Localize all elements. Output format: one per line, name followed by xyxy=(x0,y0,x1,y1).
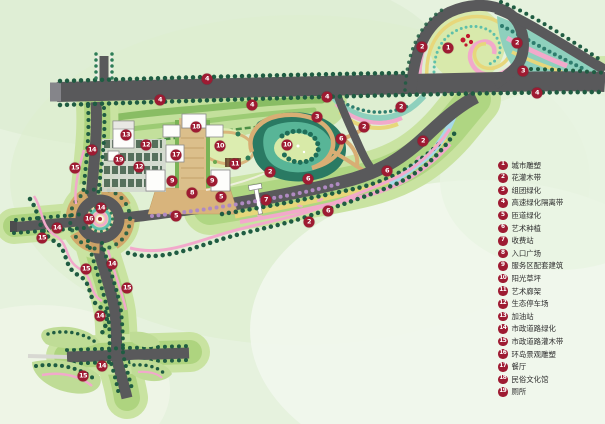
legend-label: 城市雕塑 xyxy=(512,162,542,169)
legend-label: 高速绿化隔离带 xyxy=(512,199,564,206)
art-pergola xyxy=(225,158,241,167)
folk-culture-wing-east xyxy=(206,125,223,137)
legend-number-badge: 1 xyxy=(498,161,508,171)
legend-label: 加油站 xyxy=(512,313,534,320)
legend-item: 7 收费站 xyxy=(498,235,563,248)
toilet-building xyxy=(108,151,119,161)
service-building-east xyxy=(211,170,230,191)
legend-item: 17 餐厅 xyxy=(498,361,563,374)
legend-label: 艺术廊架 xyxy=(512,288,542,295)
legend-label: 服务区配套建筑 xyxy=(512,262,564,269)
legend-number-badge: 14 xyxy=(498,324,508,334)
legend-number-badge: 17 xyxy=(498,362,508,372)
legend-item: 11 艺术廊架 xyxy=(498,285,563,298)
legend-number-badge: 8 xyxy=(498,249,508,259)
restaurant-building xyxy=(166,145,184,162)
legend-label: 入口广场 xyxy=(512,250,542,257)
legend-item: 6 艺术种植 xyxy=(498,222,563,235)
legend-label: 市政道路绿化 xyxy=(512,325,556,332)
folk-culture-wing-west xyxy=(163,125,180,137)
legend-item: 10 阳光草坪 xyxy=(498,272,563,285)
landscape-plan-canvas: 4444421232326210101813121719121129985766… xyxy=(0,0,605,424)
highway xyxy=(57,81,605,92)
west-road xyxy=(16,221,84,227)
folk-culture-hall xyxy=(182,114,206,128)
municipal-road-north xyxy=(91,102,96,199)
roundabout-sculpture-dot xyxy=(98,217,102,221)
legend-label: 匝道绿化 xyxy=(512,212,542,219)
legend-item: 8 入口广场 xyxy=(498,247,563,260)
city-sculpture-dot xyxy=(466,34,470,38)
legend-number-badge: 18 xyxy=(498,375,508,385)
legend-number-badge: 11 xyxy=(498,286,508,296)
legend-label: 民俗文化馆 xyxy=(512,376,549,383)
legend-label: 环岛景观雕塑 xyxy=(512,351,556,358)
legend-number-badge: 3 xyxy=(498,186,508,196)
legend-number-badge: 15 xyxy=(498,337,508,347)
city-sculpture-dot xyxy=(464,43,467,46)
legend-item: 12 生态停车场 xyxy=(498,298,563,311)
legend: 1 城市雕塑 2 花灌木带 3 组团绿化 4 高速绿化隔离带 5 匝道绿化 6 … xyxy=(498,159,563,398)
legend-item: 1 城市雕塑 xyxy=(498,159,563,172)
legend-item: 14 市政道路绿化 xyxy=(498,323,563,336)
legend-item: 16 环岛景观雕塑 xyxy=(498,348,563,361)
legend-number-badge: 10 xyxy=(498,274,508,284)
legend-item: 2 花灌木带 xyxy=(498,172,563,185)
cross-road xyxy=(67,353,189,357)
legend-label: 市政道路灌木带 xyxy=(512,338,564,345)
legend-number-badge: 13 xyxy=(498,312,508,322)
legend-item: 9 服务区配套建筑 xyxy=(498,260,563,273)
service-building-west xyxy=(146,170,165,191)
legend-number-badge: 4 xyxy=(498,198,508,208)
legend-number-badge: 9 xyxy=(498,261,508,271)
legend-item: 5 匝道绿化 xyxy=(498,209,563,222)
legend-label: 厕所 xyxy=(512,388,527,395)
legend-item: 4 高速绿化隔离带 xyxy=(498,197,563,210)
legend-number-badge: 16 xyxy=(498,349,508,359)
legend-number-badge: 2 xyxy=(498,173,508,183)
legend-number-badge: 12 xyxy=(498,299,508,309)
legend-item: 13 加油站 xyxy=(498,310,563,323)
legend-item: 19 厕所 xyxy=(498,386,563,399)
legend-label: 收费站 xyxy=(512,237,534,244)
legend-number-badge: 5 xyxy=(498,211,508,221)
legend-label: 餐厅 xyxy=(512,363,527,370)
roundabout xyxy=(70,189,130,249)
legend-item: 18 民俗文化馆 xyxy=(498,373,563,386)
legend-label: 生态停车场 xyxy=(512,300,549,307)
legend-item: 15 市政道路灌木带 xyxy=(498,335,563,348)
city-sculpture-dot xyxy=(461,38,466,43)
legend-number-badge: 7 xyxy=(498,236,508,246)
legend-label: 花灌木带 xyxy=(512,174,542,181)
legend-item: 3 组团绿化 xyxy=(498,184,563,197)
city-sculpture-dot xyxy=(469,40,473,44)
legend-label: 组团绿化 xyxy=(512,187,542,194)
legend-label: 艺术种植 xyxy=(512,225,542,232)
legend-number-badge: 19 xyxy=(498,387,508,397)
legend-label: 阳光草坪 xyxy=(512,275,542,282)
legend-number-badge: 6 xyxy=(498,224,508,234)
